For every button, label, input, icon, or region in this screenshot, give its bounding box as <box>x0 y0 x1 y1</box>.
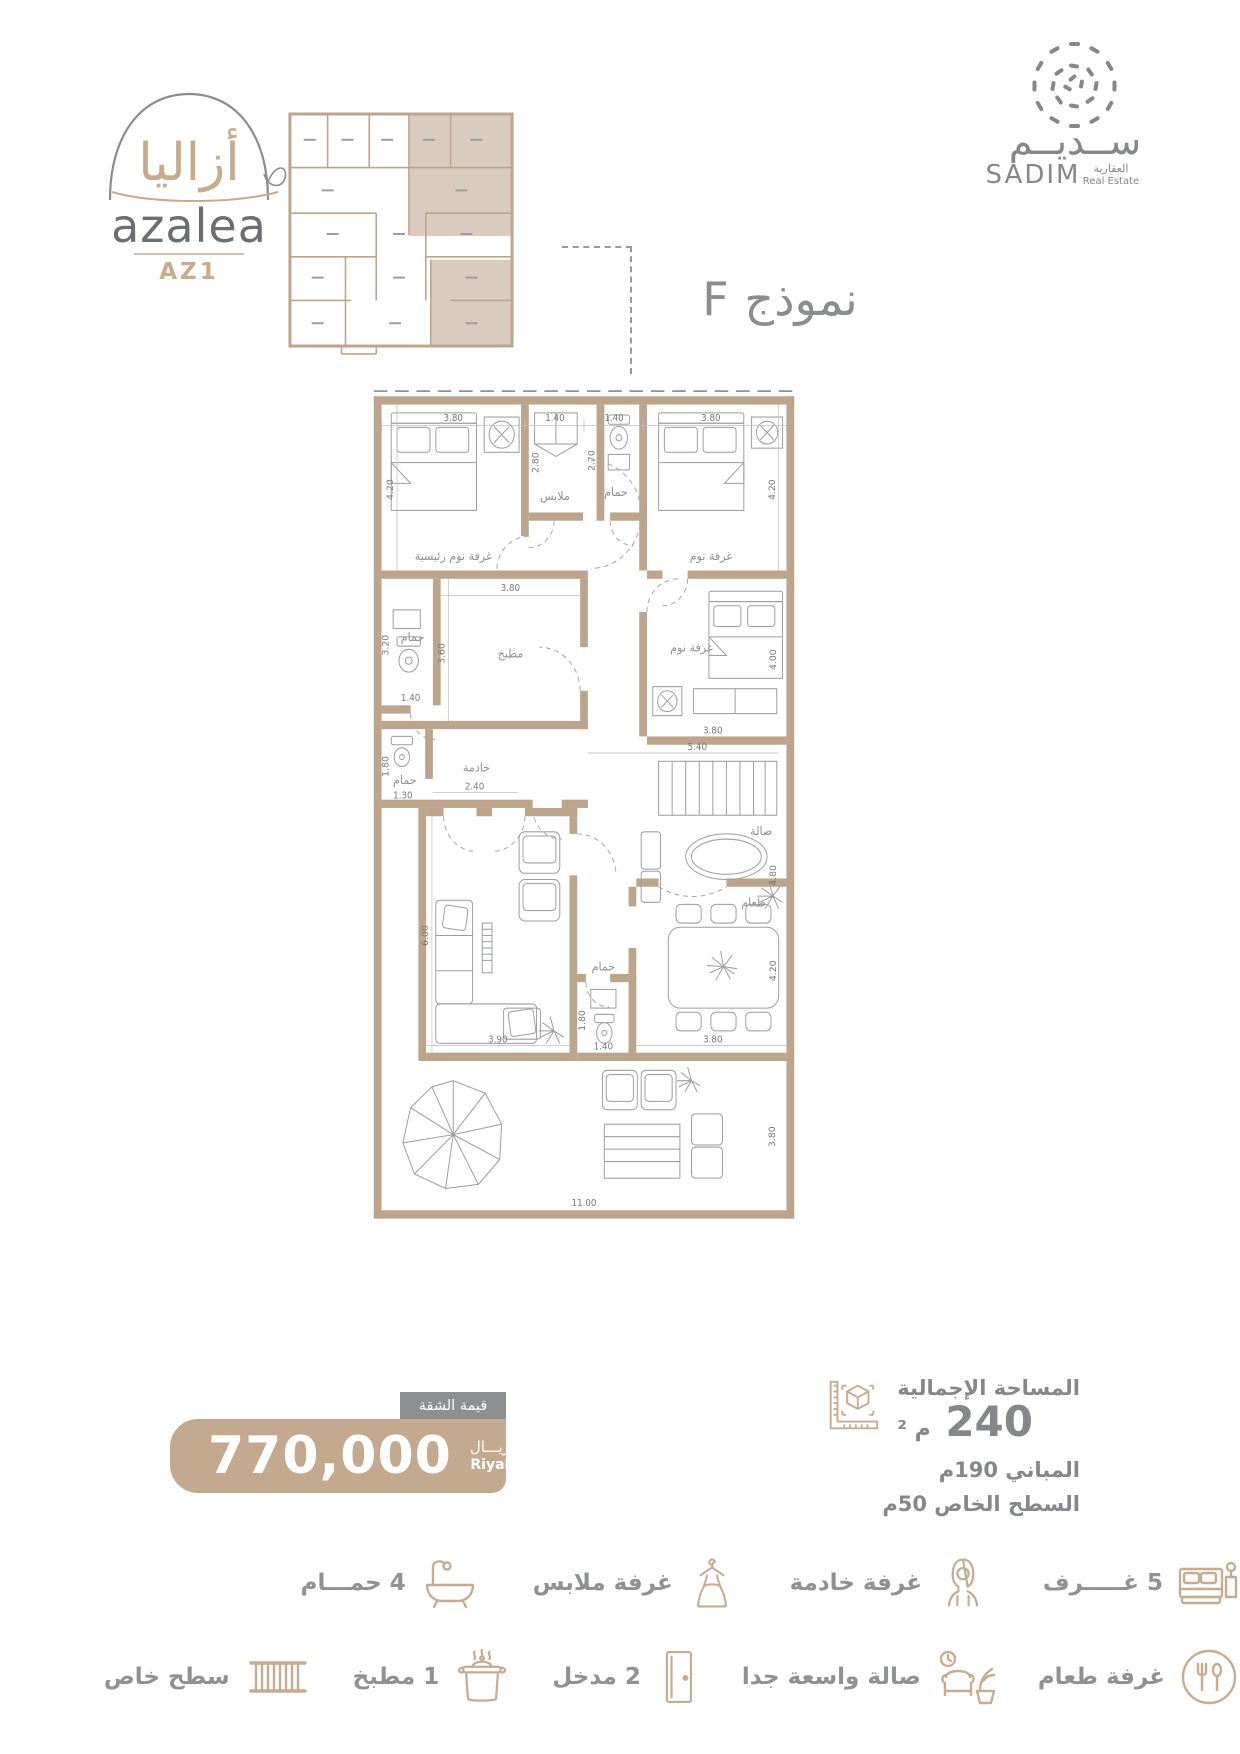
brochure-page: أزاليا azalea AZ1 <box>0 0 1240 1754</box>
feature-label: 2 مدخل <box>552 1664 641 1690</box>
svg-text:4.20: 4.20 <box>768 479 778 500</box>
pot-icon <box>452 1646 512 1708</box>
feature-spacious-hall: صالة واسعة جدا <box>742 1647 998 1707</box>
svg-text:3.80: 3.80 <box>703 1035 723 1045</box>
svg-text:1.40: 1.40 <box>401 694 421 704</box>
svg-text:3.80: 3.80 <box>701 414 721 424</box>
ladder-icon <box>243 1649 313 1705</box>
door-arcs <box>411 461 727 1007</box>
svg-text:3.80: 3.80 <box>501 584 521 594</box>
svg-text:ملابس: ملابس <box>540 489 570 505</box>
feature-label: 5 غـــــرف <box>1043 1570 1163 1596</box>
price-box: 770,000 ريـــال Riyal <box>170 1419 506 1493</box>
svg-text:1.40: 1.40 <box>594 1042 614 1052</box>
svg-text:1.40: 1.40 <box>604 414 624 424</box>
price-amount: 770,000 <box>208 1426 452 1486</box>
svg-text:3.80: 3.80 <box>444 414 464 424</box>
svg-text:11.00: 11.00 <box>572 1199 597 1209</box>
svg-text:5.40: 5.40 <box>688 743 708 753</box>
feature-label: صالة واسعة جدا <box>742 1664 921 1690</box>
svg-text:6.00: 6.00 <box>421 925 431 946</box>
svg-text:خادمة: خادمة <box>463 760 490 774</box>
highlighted-unit <box>409 115 512 236</box>
svg-text:4.20: 4.20 <box>769 960 779 981</box>
model-title: نموذج F <box>615 272 945 326</box>
svg-text:2.80: 2.80 <box>532 452 542 473</box>
feature-label: سطح خاص <box>104 1664 230 1690</box>
developer-arabic: ســديــم <box>1009 119 1141 163</box>
feature-entrances: 2 مدخل <box>552 1646 702 1708</box>
svg-text:3.80: 3.80 <box>703 726 723 736</box>
bed-icon <box>1176 1553 1240 1613</box>
dress-icon <box>686 1552 738 1614</box>
dining-icon <box>1178 1646 1240 1708</box>
feature-kitchen: 1 مطبخ <box>353 1646 513 1708</box>
brand-arabic: أزاليا <box>138 128 239 193</box>
developer-english: SADIM <box>986 160 1081 186</box>
plan-walls <box>374 396 794 1218</box>
svg-text:3.90: 3.90 <box>488 1035 508 1045</box>
svg-text:1.80: 1.80 <box>382 756 392 777</box>
feature-label: 1 مطبخ <box>353 1664 440 1690</box>
feature-dining-room: غرفة طعام <box>1038 1646 1240 1708</box>
price-tab: قيمة الشقة <box>400 1392 506 1419</box>
feature-bedrooms: 5 غـــــرف <box>1043 1553 1240 1613</box>
feature-bathrooms: 4 حمـــام <box>301 1553 481 1613</box>
svg-text:3.20: 3.20 <box>382 635 392 656</box>
svg-text:4.80: 4.80 <box>769 865 779 886</box>
price-block: قيمة الشقة 770,000 ريـــال Riyal <box>170 1392 506 1493</box>
area-info: المساحة الإجمالية 240 م ² <box>758 1376 1080 1516</box>
svg-text:حمام: حمام <box>592 959 616 973</box>
svg-text:3.80: 3.80 <box>768 1126 778 1147</box>
sofa-icon <box>934 1647 998 1707</box>
svg-text:طعام: طعام <box>741 895 765 909</box>
svg-text:4.20: 4.20 <box>386 479 396 500</box>
features-row-1: 5 غـــــرف غرفة خادمة غرفة <box>0 1552 1240 1614</box>
feature-private-roof: سطح خاص <box>104 1649 313 1705</box>
currency-arabic: ريـــال <box>470 1439 510 1456</box>
sadim-logo: ســديــم SADIM العقارية Real Estate <box>915 36 1165 186</box>
building-overview-plan <box>282 106 520 358</box>
currency-english: Riyal <box>470 1457 510 1473</box>
svg-text:حمام: حمام <box>393 773 417 787</box>
svg-text:مطبخ: مطبخ <box>498 646 524 660</box>
built-area: المباني 190م <box>758 1458 1080 1482</box>
svg-text:غرفة نوم رئيسية: غرفة نوم رئيسية <box>415 549 492 565</box>
svg-text:حمام: حمام <box>401 630 425 644</box>
feature-label: 4 حمـــام <box>301 1570 406 1596</box>
svg-text:2.40: 2.40 <box>465 782 485 792</box>
door-icon <box>654 1646 702 1708</box>
bathtub-icon <box>419 1553 481 1613</box>
sadim-swirl-icon <box>1033 42 1117 128</box>
brand-english: azalea <box>111 199 267 253</box>
unit-code: AZ1 <box>159 259 218 282</box>
feature-maid-room: غرفة خادمة <box>790 1553 991 1613</box>
feature-label: غرفة ملابس <box>533 1570 673 1596</box>
svg-text:1.80: 1.80 <box>578 1010 588 1031</box>
svg-text:غرفة نوم: غرفة نوم <box>670 640 712 656</box>
developer-tagline-ar: العقارية <box>1094 162 1129 175</box>
connector-line-horizontal <box>562 246 632 248</box>
svg-text:3.60: 3.60 <box>438 643 448 664</box>
feature-label: غرفة خادمة <box>790 1570 922 1596</box>
feature-label: غرفة طعام <box>1038 1664 1165 1690</box>
features-row-2: غرفة طعام صالة واسعة جدا <box>0 1646 1240 1708</box>
svg-text:1.30: 1.30 <box>393 791 413 801</box>
svg-text:4.00: 4.00 <box>769 649 779 670</box>
svg-text:غرفة نوم: غرفة نوم <box>690 549 732 565</box>
price-currency: ريـــال Riyal <box>470 1439 510 1472</box>
developer-tagline-en: Real Estate <box>1083 176 1139 186</box>
svg-text:حمام: حمام <box>604 484 628 498</box>
feature-dressing-room: غرفة ملابس <box>533 1552 738 1614</box>
roof-area: السطح الخاص 50م <box>758 1492 1080 1516</box>
main-floor-plan: غرفة نوم رئيسية ملابس حمام غرفة نوم حمام… <box>368 388 800 1230</box>
total-area-value: 240 م ² <box>897 1400 1080 1444</box>
svg-text:2.70: 2.70 <box>588 450 598 471</box>
svg-text:صالة: صالة <box>750 824 772 838</box>
svg-text:1.40: 1.40 <box>545 414 565 424</box>
maid-icon <box>935 1553 991 1613</box>
azalea-logo: أزاليا azalea AZ1 <box>72 42 307 282</box>
area-unit: م ² <box>897 1417 930 1442</box>
ruler-cube-icon <box>821 1376 883 1438</box>
